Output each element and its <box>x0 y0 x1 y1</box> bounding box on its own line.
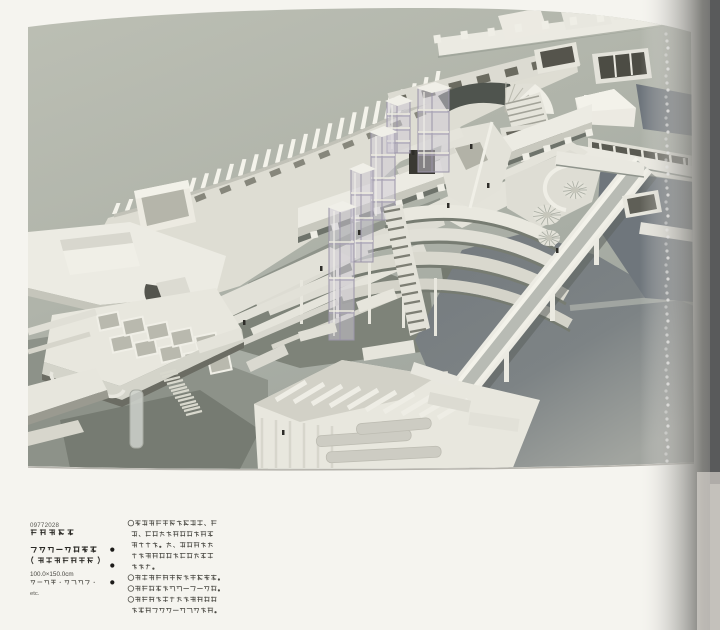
svg-text:09772028: 09772028 <box>30 522 59 529</box>
svg-text:100.0×150.0cm: 100.0×150.0cm <box>30 571 74 578</box>
svg-text:etc.: etc. <box>30 591 40 597</box>
